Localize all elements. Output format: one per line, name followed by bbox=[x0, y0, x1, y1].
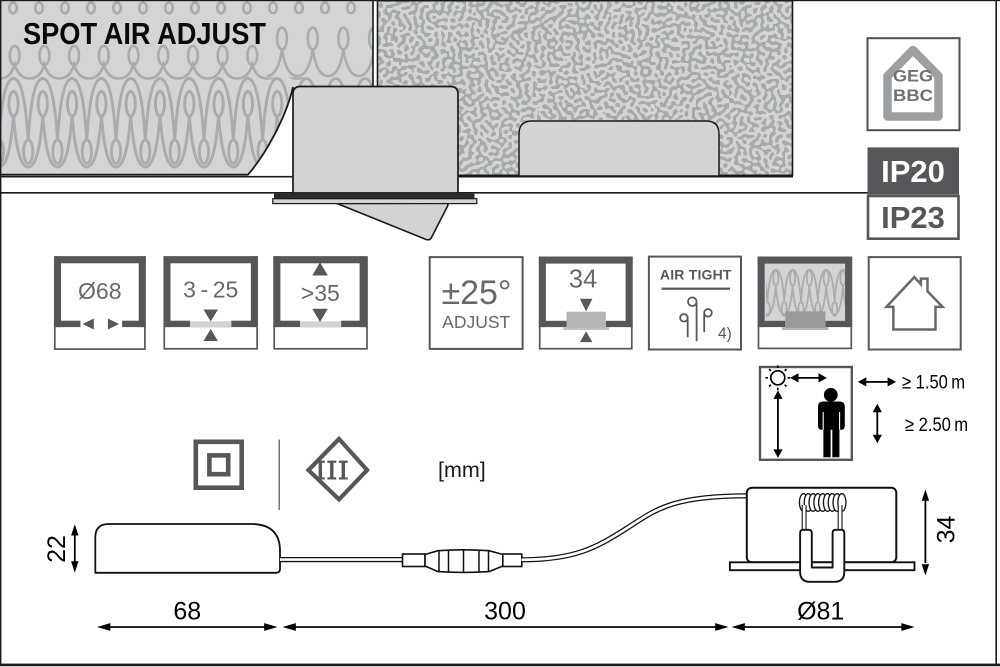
svg-text:Ø68: Ø68 bbox=[78, 278, 121, 304]
svg-text:34: 34 bbox=[933, 516, 961, 544]
svg-text:3 - 25: 3 - 25 bbox=[183, 277, 238, 303]
svg-text:BBC: BBC bbox=[893, 86, 933, 105]
svg-text:34: 34 bbox=[569, 266, 597, 294]
svg-text:[mm]: [mm] bbox=[438, 458, 486, 482]
svg-text:IP20: IP20 bbox=[881, 154, 945, 189]
svg-text:4): 4) bbox=[718, 326, 732, 343]
svg-text:>35: >35 bbox=[301, 280, 340, 306]
svg-text:≥ 1.50 m: ≥ 1.50 m bbox=[902, 372, 965, 394]
svg-text:300: 300 bbox=[484, 597, 526, 625]
svg-text:AIR TIGHT: AIR TIGHT bbox=[660, 267, 732, 283]
svg-text:IP23: IP23 bbox=[881, 200, 945, 235]
svg-text:SPOT AIR ADJUST: SPOT AIR ADJUST bbox=[23, 16, 266, 51]
svg-text:22: 22 bbox=[43, 535, 71, 563]
svg-text:≥ 2.50 m: ≥ 2.50 m bbox=[905, 414, 968, 436]
svg-text:ADJUST: ADJUST bbox=[442, 312, 510, 332]
svg-text:Ø81: Ø81 bbox=[797, 597, 844, 625]
svg-text:GEG: GEG bbox=[893, 67, 933, 86]
svg-text:68: 68 bbox=[173, 597, 201, 625]
svg-text:±25°: ±25° bbox=[441, 274, 511, 312]
